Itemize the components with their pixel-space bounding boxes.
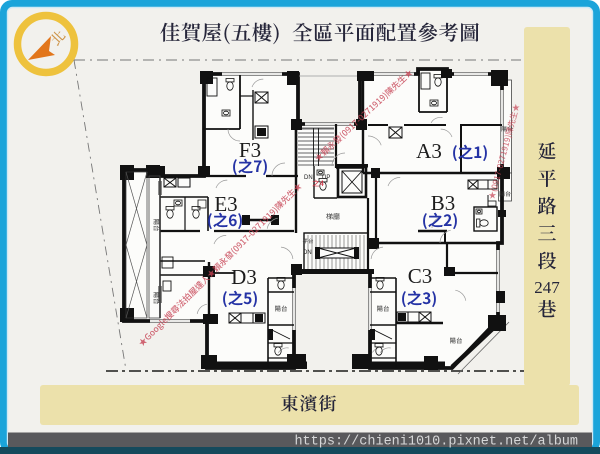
- svg-text:DN: DN: [304, 175, 313, 181]
- svg-text:E3: E3: [214, 192, 237, 216]
- svg-text:UP: UP: [322, 175, 330, 181]
- svg-text:B3: B3: [431, 191, 456, 215]
- svg-text:A3: A3: [416, 139, 442, 163]
- svg-text:DN: DN: [303, 250, 312, 256]
- svg-text:D3: D3: [231, 265, 257, 289]
- svg-text:F3: F3: [239, 138, 261, 162]
- svg-text:C3: C3: [408, 264, 433, 288]
- svg-text:247: 247: [534, 278, 560, 297]
- svg-text:https://chieni1010.pixnet.net/: https://chieni1010.pixnet.net/album: [294, 435, 578, 450]
